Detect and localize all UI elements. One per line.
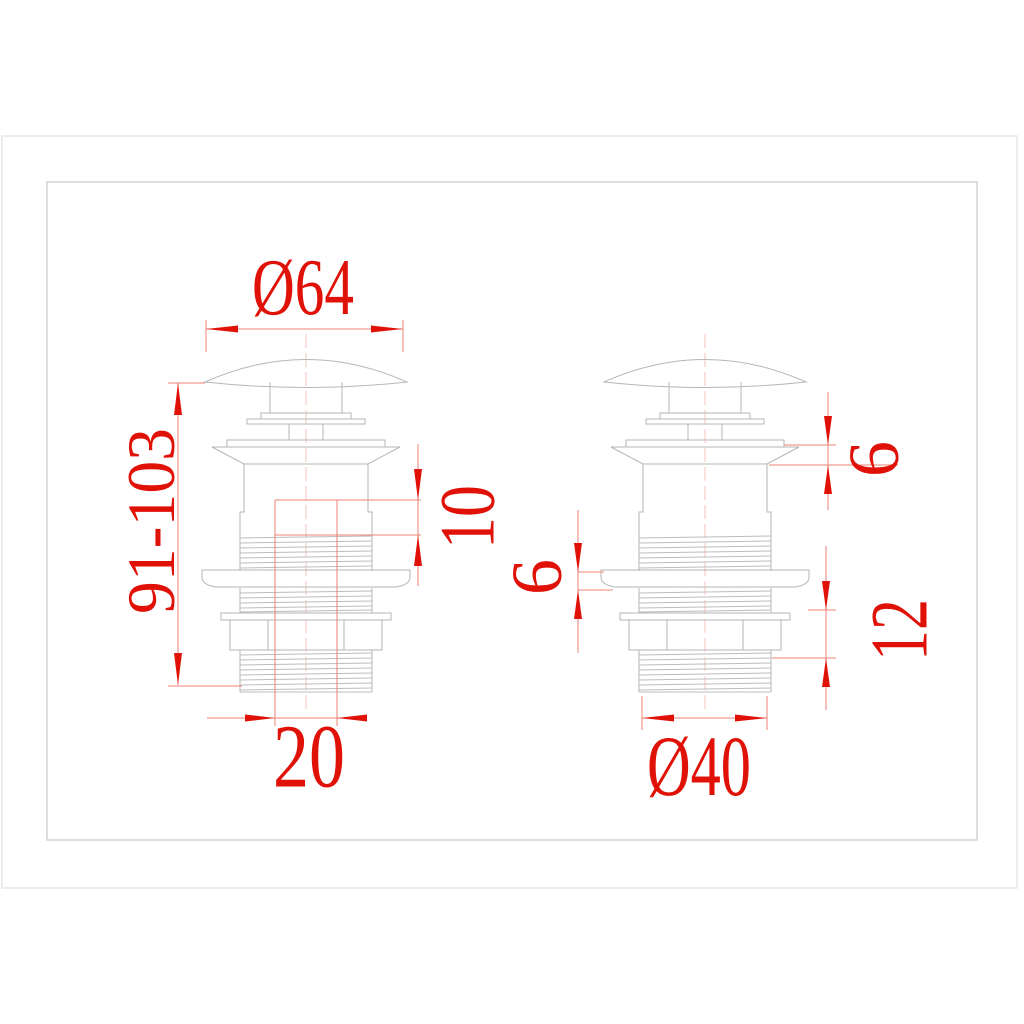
arrowhead-down	[822, 581, 830, 610]
drawing-canvas: Ø64 91-103 10 20 6 6 12	[0, 0, 1024, 1024]
arrowhead-right	[245, 715, 275, 722]
dim-locknut-section-label: 12	[854, 599, 945, 661]
dim-lines-gasket	[578, 510, 613, 653]
dim-height-range: 91-103	[113, 383, 242, 686]
technical-drawing: Ø64 91-103 10 20 6 6 12	[0, 0, 1024, 1024]
dim-gasket-thickness: 6	[497, 510, 613, 653]
dim-upper-thread-label: 10	[424, 485, 511, 549]
dim-thread-diameter-label: Ø40	[647, 718, 751, 814]
dim-locknut-section: 12	[772, 546, 945, 710]
arrowhead-up	[824, 465, 832, 494]
dim-cap-diameter: Ø64	[206, 244, 403, 352]
left-figure-drawing	[202, 334, 410, 714]
dim-cap-diameter-label: Ø64	[252, 244, 354, 332]
arrowhead-up	[414, 535, 422, 566]
right-figure-drawing	[601, 334, 809, 714]
dim-inner-tube-width: 20	[207, 708, 367, 807]
arrowhead-up	[174, 383, 182, 415]
arrowhead-down	[824, 416, 832, 445]
arrowhead-down	[174, 653, 182, 685]
arrowhead-down	[414, 469, 422, 500]
dim-thread-diameter: Ø40	[642, 696, 767, 814]
arrowhead-right	[371, 326, 403, 333]
dim-inner-tube-label: 20	[273, 708, 345, 807]
arrowhead-up	[822, 658, 830, 687]
dim-gasket-thickness-label: 6	[497, 559, 577, 595]
dim-flange-height-label: 6	[834, 441, 914, 477]
arrowhead-left	[206, 326, 238, 333]
dim-height-range-label: 91-103	[113, 428, 189, 614]
